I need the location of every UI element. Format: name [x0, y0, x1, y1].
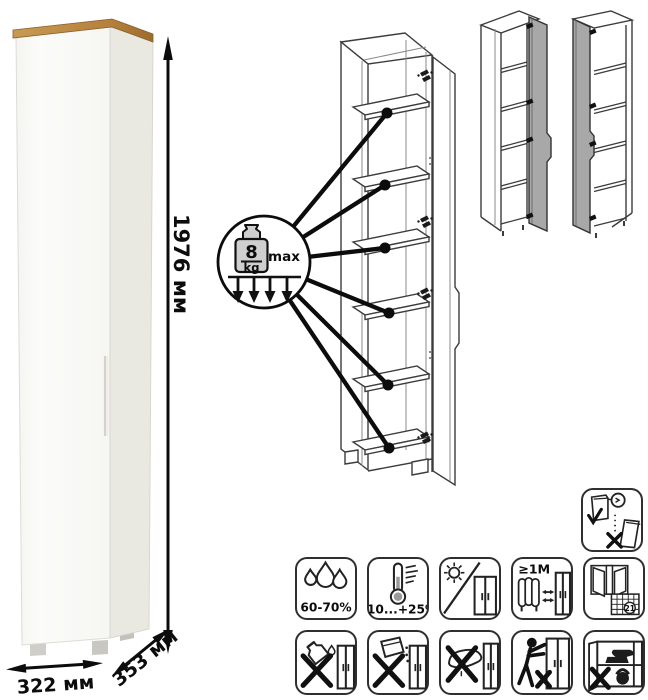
wardrobe-glyph [547, 639, 569, 689]
height-dimension-label: 1976 мм [169, 214, 193, 314]
spacing-arrows [542, 590, 554, 603]
weight-icon-handle [243, 225, 260, 240]
wardrobe-glyph [556, 573, 570, 615]
temperature-label: +10...+25⁰C [369, 602, 427, 616]
width-arrowhead-right [83, 660, 103, 669]
cabinet-door-front [16, 27, 110, 645]
heat-distance-icon: ≥1М [513, 559, 571, 618]
width-arrowhead-left [6, 664, 26, 673]
hinge-marks [417, 70, 432, 445]
shelf-callout-dots [380, 108, 395, 454]
calendar-glyph: 21 [611, 594, 638, 614]
width-dimension-label: 322 мм [16, 671, 95, 698]
ventilation-icon: 21 [585, 559, 643, 618]
variant-left-door [573, 11, 632, 238]
wardrobe-glyph [338, 646, 354, 689]
height-arrowhead-top [163, 36, 173, 60]
window-glyph [591, 566, 628, 597]
temperature-icon: +10...+25⁰C [369, 559, 427, 618]
wall-anchor-icon [583, 490, 641, 550]
cabinet-foot-right [92, 640, 108, 655]
pictogram-no-solvents [295, 630, 357, 695]
wardrobe-glyph [475, 577, 496, 615]
cabinet-photo [13, 19, 153, 656]
pictogram-no-dragging [511, 630, 573, 695]
carcass-foot-right [412, 459, 428, 475]
carcass-foot-left [345, 450, 358, 464]
humidity-icon: 60-70% [297, 559, 355, 618]
sunlight-icon [441, 559, 499, 618]
pictogram-no-heavy-items [583, 630, 645, 695]
open-door-panel [433, 57, 459, 485]
weight-unit: kg [244, 261, 260, 275]
no-solvents-icon [297, 632, 355, 693]
no-heavy-items-icon [585, 632, 643, 693]
pictogram-ventilation: 21 [583, 557, 645, 620]
calendar-day: 21 [624, 604, 635, 613]
x-mark [608, 534, 621, 547]
pictogram-no-direct-sunlight [439, 557, 501, 620]
pictogram-wall-anchor [581, 488, 643, 552]
pictogram-heat-distance: ≥1М [511, 557, 573, 620]
variant-right-door [481, 11, 551, 236]
pictogram-humidity: 60-70% [295, 557, 357, 620]
width-arrow-line [24, 664, 85, 668]
wardrobe-glyph [410, 646, 426, 689]
open-cabinet-diagram: 8 kg max [218, 33, 459, 485]
pictogram-no-abrasives [367, 630, 429, 695]
cabinet-side-panel [110, 27, 153, 638]
pictogram-temperature: +10...+25⁰C [367, 557, 429, 620]
radiator-glyph [519, 578, 539, 606]
no-wet-cloth-icon [441, 632, 499, 693]
x-mark [375, 656, 402, 686]
product-sheet: 1976 мм 322 мм 353 мм [0, 0, 648, 700]
pictogram-no-wet-cloth [439, 630, 501, 695]
no-dragging-icon [513, 632, 571, 693]
max-label: max [268, 249, 300, 265]
no-abrasives-icon [369, 632, 427, 693]
load-limit-badge: 8 kg max [218, 216, 310, 308]
wardrobe-glyph [484, 644, 498, 689]
humidity-label: 60-70% [300, 600, 351, 614]
distance-label: ≥1М [518, 562, 550, 577]
